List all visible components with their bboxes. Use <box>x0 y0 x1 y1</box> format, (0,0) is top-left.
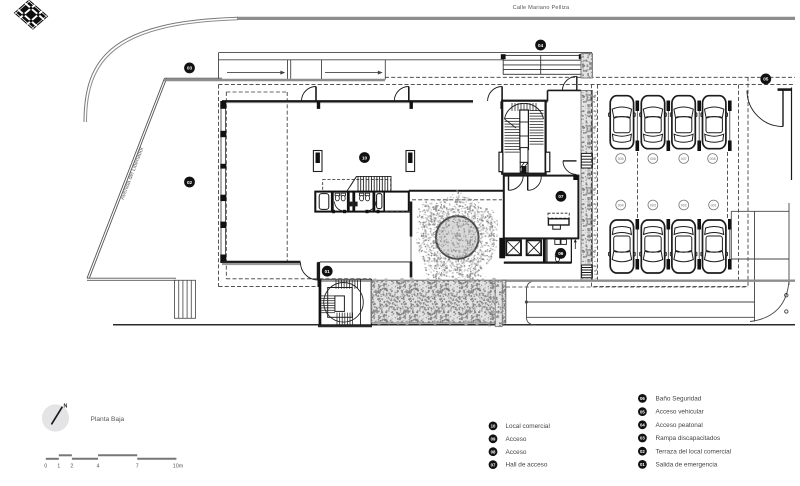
svg-text:0: 0 <box>44 464 47 470</box>
svg-text:10: 10 <box>491 424 496 429</box>
svg-text:007: 007 <box>681 157 687 161</box>
svg-text:Calle Mariano Pelliza: Calle Mariano Pelliza <box>513 5 570 11</box>
svg-text:10: 10 <box>362 155 368 160</box>
svg-text:06: 06 <box>640 396 645 401</box>
svg-text:Acceso peatonal: Acceso peatonal <box>656 422 703 429</box>
svg-text:2: 2 <box>70 464 73 470</box>
svg-text:01: 01 <box>640 462 645 467</box>
svg-text:Acceso: Acceso <box>506 449 527 456</box>
svg-text:01: 01 <box>325 269 331 274</box>
svg-text:N: N <box>64 404 68 410</box>
svg-text:04: 04 <box>538 43 544 48</box>
svg-text:Acceso: Acceso <box>506 436 527 443</box>
svg-text:004: 004 <box>618 203 624 207</box>
svg-text:Rampa discapacitados: Rampa discapacitados <box>656 435 721 442</box>
svg-text:Local comercial: Local comercial <box>506 423 550 430</box>
svg-text:7: 7 <box>136 464 139 470</box>
svg-text:07: 07 <box>491 462 496 467</box>
svg-text:003: 003 <box>650 203 656 207</box>
svg-text:03: 03 <box>187 66 193 71</box>
svg-text:10m: 10m <box>173 464 184 470</box>
svg-text:001: 001 <box>711 203 717 207</box>
svg-text:Terraza del local comercial: Terraza del local comercial <box>656 448 732 455</box>
svg-text:005: 005 <box>618 157 624 161</box>
svg-text:09: 09 <box>491 437 496 442</box>
svg-text:07: 07 <box>558 194 564 199</box>
svg-text:4: 4 <box>97 464 100 470</box>
svg-text:02: 02 <box>187 180 193 185</box>
svg-text:Baño Seguridad: Baño Seguridad <box>656 396 702 403</box>
svg-text:008: 008 <box>710 157 716 161</box>
svg-text:05: 05 <box>640 409 645 414</box>
svg-text:006: 006 <box>650 157 656 161</box>
svg-text:Hall de acceso: Hall de acceso <box>506 462 548 469</box>
svg-text:Acceso vehicular: Acceso vehicular <box>656 409 705 416</box>
svg-text:08: 08 <box>491 449 496 454</box>
svg-text:Planta Baja: Planta Baja <box>91 416 125 423</box>
svg-text:1: 1 <box>57 464 60 470</box>
svg-text:05: 05 <box>763 77 769 82</box>
svg-text:Salida de emergencia: Salida de emergencia <box>656 462 718 469</box>
svg-text:04: 04 <box>640 423 645 428</box>
svg-text:02: 02 <box>640 449 645 454</box>
svg-text:03: 03 <box>640 436 645 441</box>
svg-text:06: 06 <box>558 251 564 256</box>
svg-text:002: 002 <box>681 203 687 207</box>
